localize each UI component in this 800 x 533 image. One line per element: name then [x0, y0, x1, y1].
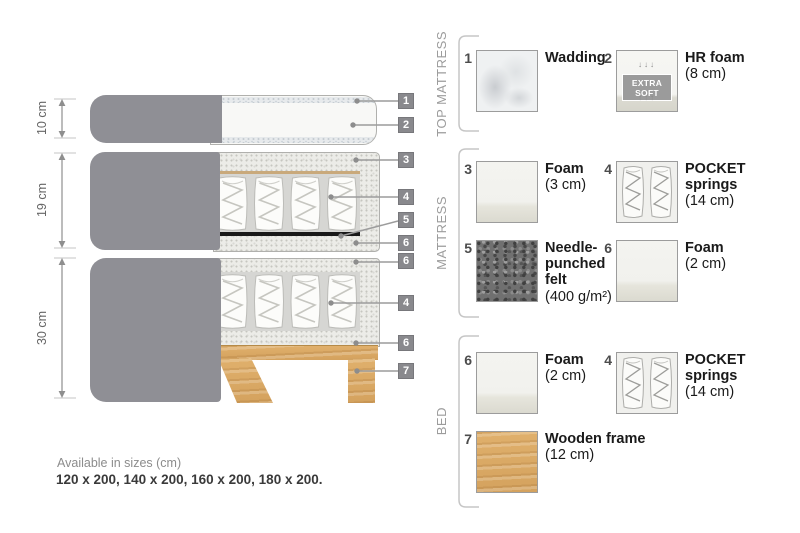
callout-6b: 6: [398, 253, 414, 269]
mattress-pocket-springs-graphic: [214, 174, 360, 233]
bed-springs-area: [214, 272, 360, 331]
foam-swatch: [616, 240, 678, 302]
pocket-springs-swatch: [616, 161, 678, 223]
legend-item-pocket-springs: 4 POCKET springs (14 cm): [598, 161, 789, 223]
mattress-fabric-cover: [90, 152, 220, 250]
legend-item-name: HR foam: [685, 50, 789, 66]
mattress-springs-area: [214, 174, 360, 233]
foam-swatch: [476, 161, 538, 223]
hr-foam-swatch: ↓↓↓ EXTRA SOFT ↑↑↑: [616, 50, 678, 112]
foam-swatch: [476, 352, 538, 414]
callout-5: 5: [398, 212, 414, 228]
bed-pocket-springs-graphic: [214, 272, 360, 331]
pocket-springs-swatch: [616, 352, 678, 414]
pocket-springs-graphic: [617, 353, 677, 413]
mattress-cutaway: [213, 152, 380, 252]
wadding-bottom-layer: [211, 137, 376, 143]
legend-item-name: Wooden frame: [545, 431, 685, 447]
available-sizes-list: 120 x 200, 140 x 200, 160 x 200, 180 x 2…: [56, 472, 323, 487]
dimension-label-top-mattress: 10 cm: [32, 99, 52, 138]
bed-fabric-cover: [90, 258, 221, 402]
legend-group-title-mattress: MATTRESS: [430, 149, 452, 317]
legend-item-wooden-frame: 7 Wooden frame (12 cm): [458, 431, 685, 493]
legend-item-name: POCKET springs: [685, 352, 789, 384]
wadding-top-layer: [211, 97, 376, 103]
arrows-up-icon: ↑↑↑: [617, 93, 677, 102]
callout-3: 3: [398, 152, 414, 168]
felt-swatch: [476, 240, 538, 302]
callout-7: 7: [398, 363, 414, 379]
top-mattress-fabric-cover: [90, 95, 222, 143]
mattress-felt-layer: [214, 232, 360, 236]
arrows-down-icon: ↓↓↓: [617, 60, 677, 69]
dimension-label-bed: 30 cm: [32, 258, 52, 398]
legend-item-detail: (12 cm): [545, 447, 685, 463]
legend-item-detail: (14 cm): [685, 384, 789, 400]
legend-item-detail: (2 cm): [685, 256, 789, 272]
wadding-swatch: [476, 50, 538, 112]
bed-cutaway: [213, 258, 380, 347]
legend-item-name: POCKET springs: [685, 161, 789, 193]
legend-item-detail: (14 cm): [685, 193, 789, 209]
dimension-ticks: [54, 99, 76, 398]
callout-4b: 4: [398, 295, 414, 311]
callout-6: 6: [398, 235, 414, 251]
wood-swatch: [476, 431, 538, 493]
mattress-construction-infographic: 10 cm 19 cm 30 cm 1 2 3 4 5 6 6 4 6 7 TO…: [0, 0, 800, 533]
legend-group-title-top-mattress: TOP MATTRESS: [430, 36, 452, 131]
wooden-frame-left-support: [215, 358, 273, 403]
pocket-springs-graphic: [617, 162, 677, 222]
dimension-label-mattress: 19 cm: [32, 153, 52, 248]
legend-item-bed-pocket-springs: 4 POCKET springs (14 cm): [598, 352, 789, 414]
wooden-frame-leg: [348, 358, 375, 403]
legend-item-hr-foam: 2 ↓↓↓ EXTRA SOFT ↑↑↑ HR foam (8 cm): [598, 50, 789, 112]
callout-1: 1: [398, 93, 414, 109]
dimension-arrows: [59, 99, 66, 398]
callout-6c: 6: [398, 335, 414, 351]
legend-item-name: Foam: [685, 240, 789, 256]
legend-item-detail: (8 cm): [685, 66, 789, 82]
legend-item-foam-2cm: 6 Foam (2 cm): [598, 240, 789, 302]
top-mattress-cutaway: [210, 95, 377, 145]
available-sizes-title: Available in sizes (cm): [57, 456, 181, 470]
callout-4: 4: [398, 189, 414, 205]
callout-2: 2: [398, 117, 414, 133]
legend-group-title-bed: BED: [430, 336, 452, 507]
